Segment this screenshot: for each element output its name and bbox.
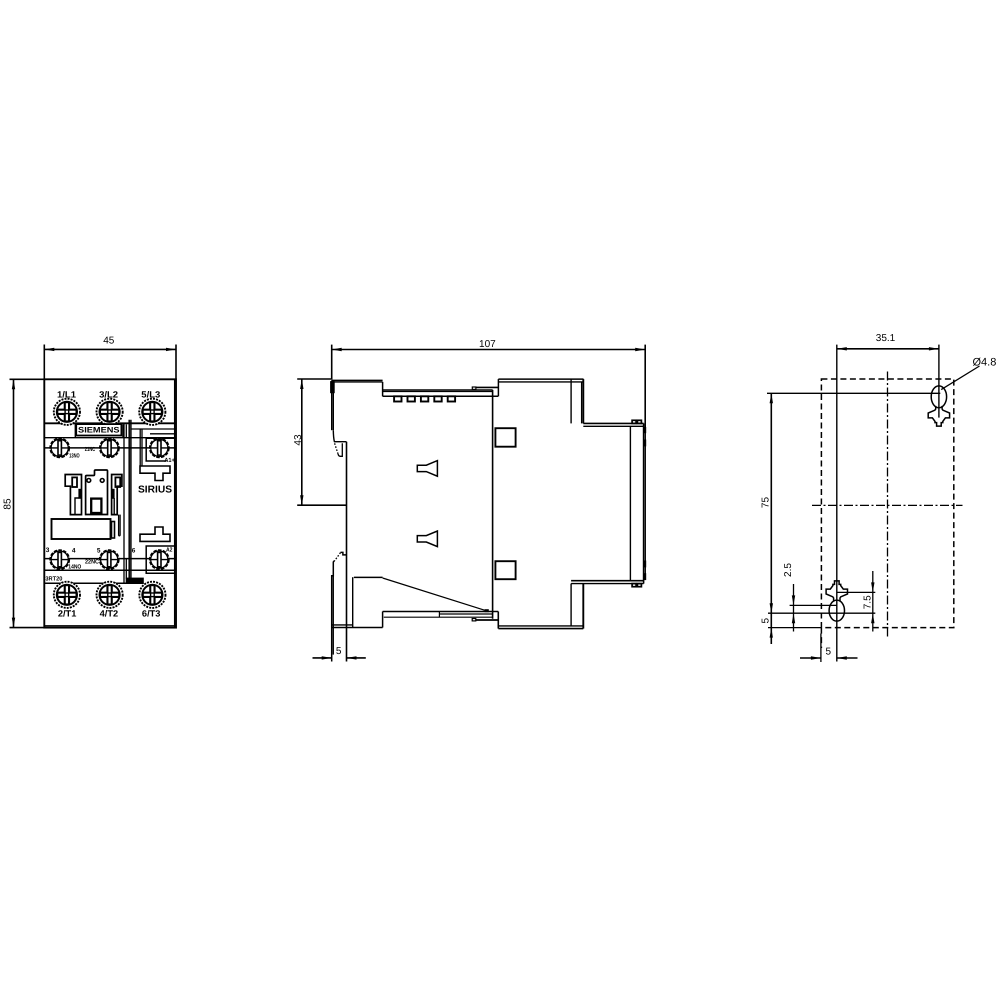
svg-text:A2: A2 xyxy=(166,546,173,553)
svg-text:6: 6 xyxy=(132,547,136,554)
svg-text:13NO: 13NO xyxy=(69,452,80,459)
svg-text:3RT20: 3RT20 xyxy=(45,575,63,582)
svg-text:3/L2: 3/L2 xyxy=(99,390,118,400)
svg-text:35.1: 35.1 xyxy=(876,333,896,344)
svg-text:3: 3 xyxy=(46,547,50,554)
svg-text:5: 5 xyxy=(97,547,101,554)
svg-text:6/T3: 6/T3 xyxy=(142,608,161,618)
svg-text:14NO: 14NO xyxy=(68,564,81,571)
svg-text:5: 5 xyxy=(336,646,342,657)
svg-text:85: 85 xyxy=(3,498,14,510)
svg-text:107: 107 xyxy=(479,339,496,350)
svg-text:4: 4 xyxy=(72,547,76,554)
svg-text:21NC: 21NC xyxy=(85,446,96,453)
svg-text:2.5: 2.5 xyxy=(783,563,794,577)
svg-text:A1+: A1+ xyxy=(164,457,175,464)
svg-text:5: 5 xyxy=(826,647,832,658)
svg-text:Ø4.8: Ø4.8 xyxy=(972,356,996,368)
svg-text:SIEMENS: SIEMENS xyxy=(78,426,120,435)
svg-text:1/L1: 1/L1 xyxy=(57,390,76,400)
svg-text:45: 45 xyxy=(103,335,115,346)
svg-text:75: 75 xyxy=(760,497,771,509)
svg-text:5: 5 xyxy=(760,617,771,623)
svg-text:7.5: 7.5 xyxy=(862,595,873,609)
svg-text:2/T1: 2/T1 xyxy=(58,608,77,618)
svg-text:4/T2: 4/T2 xyxy=(100,608,119,618)
svg-text:22NC: 22NC xyxy=(85,558,100,565)
svg-text:SIRIUS: SIRIUS xyxy=(138,485,172,496)
svg-text:43: 43 xyxy=(293,434,304,446)
svg-text:5/L3: 5/L3 xyxy=(141,390,160,400)
